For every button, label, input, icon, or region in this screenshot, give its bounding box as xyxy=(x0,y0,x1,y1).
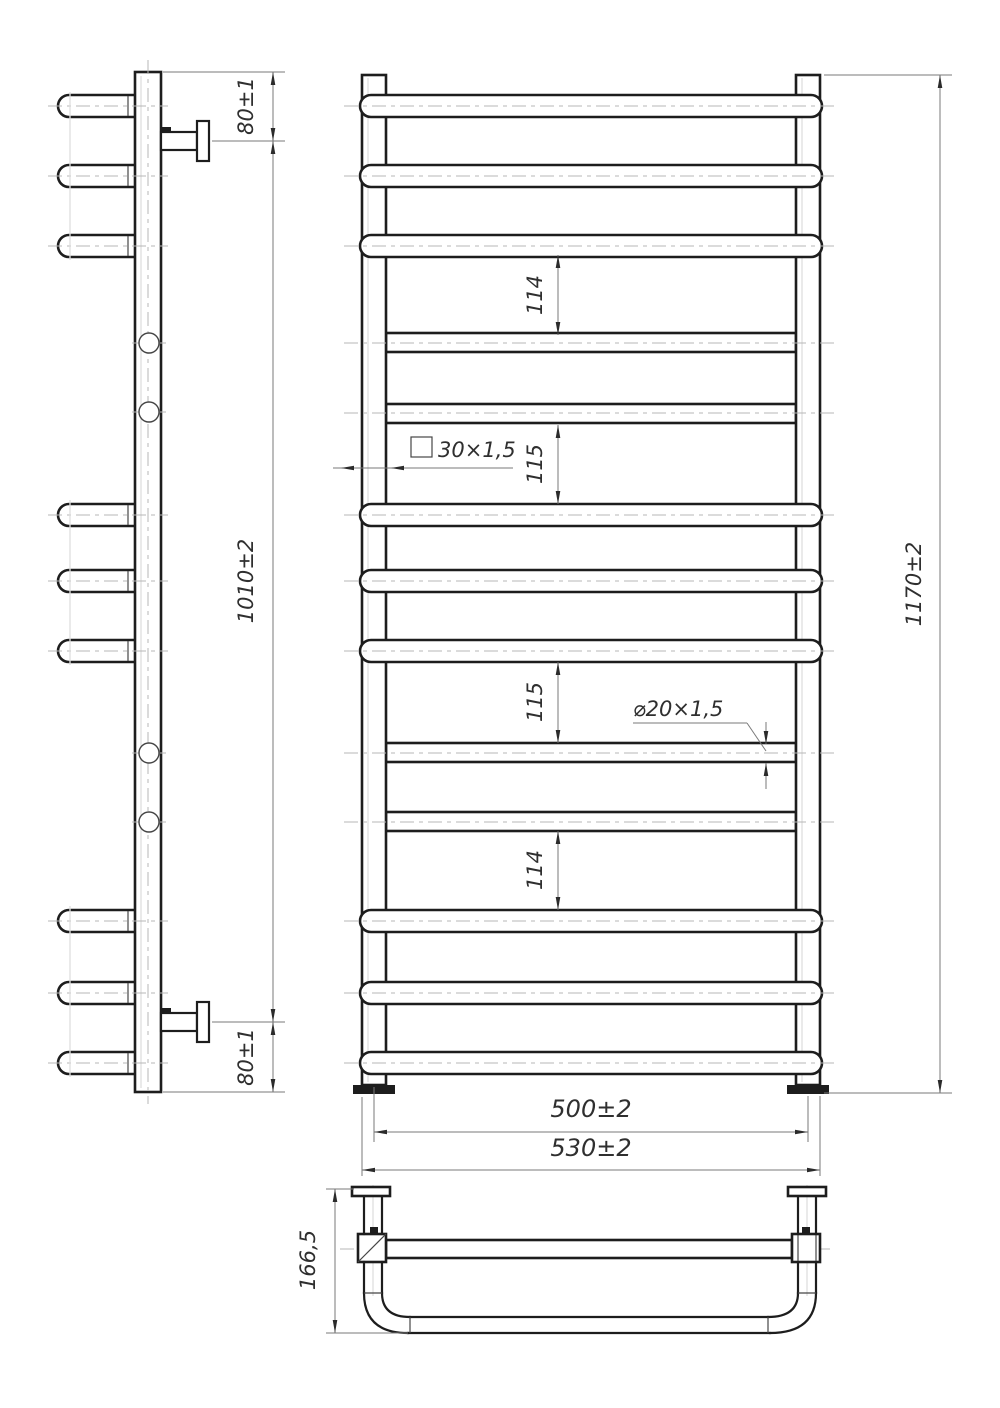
dim-depth: 166,5 xyxy=(296,1230,320,1290)
dim-gap-115-lower: 115 xyxy=(523,682,547,722)
straight-rung-end xyxy=(139,333,159,353)
straight-tube-top xyxy=(386,1240,792,1258)
top-view xyxy=(340,1185,832,1333)
wall-bracket-flange xyxy=(788,1187,826,1196)
dim-bracket-span: 1010±2 xyxy=(234,539,258,623)
technical-drawing: 80±1 1010±2 80±1 1170±2 114 115 115 114 xyxy=(0,0,1000,1408)
dim-overall-width: 530±2 xyxy=(550,1134,631,1162)
side-view xyxy=(48,60,209,1104)
straight-rung-end xyxy=(139,402,159,422)
wall-bracket-flange xyxy=(352,1187,390,1196)
right-post-foot xyxy=(787,1085,829,1094)
dimension-overall-height: 1170±2 xyxy=(824,75,952,1093)
straight-rung-end xyxy=(139,812,159,832)
drawing-canvas: 80±1 1010±2 80±1 1170±2 114 115 115 114 xyxy=(0,0,1000,1408)
u-rung-top-view xyxy=(364,1262,816,1333)
note-tube-spec-text: ⌀20×1,5 xyxy=(633,697,723,721)
dim-gap-115-upper: 115 xyxy=(523,444,547,484)
wall-bracket-bottom xyxy=(161,1002,209,1042)
square-profile-icon xyxy=(411,437,432,457)
dim-top-bracket-offset: 80±1 xyxy=(234,77,258,135)
dim-axis-width: 500±2 xyxy=(550,1095,631,1123)
dim-gap-114-lower: 114 xyxy=(523,850,547,890)
dimension-left-column: 80±1 1010±2 80±1 xyxy=(163,72,285,1092)
dim-bottom-bracket-offset: 80±1 xyxy=(234,1028,258,1086)
straight-rung-end xyxy=(139,743,159,763)
dim-overall-height: 1170±2 xyxy=(902,542,926,626)
front-view xyxy=(344,75,838,1094)
note-post-profile-text: 30×1,5 xyxy=(438,438,516,462)
wall-bracket-top xyxy=(161,121,209,161)
note-post-profile: 30×1,5 xyxy=(333,437,516,470)
dim-gap-114-upper: 114 xyxy=(523,275,547,315)
